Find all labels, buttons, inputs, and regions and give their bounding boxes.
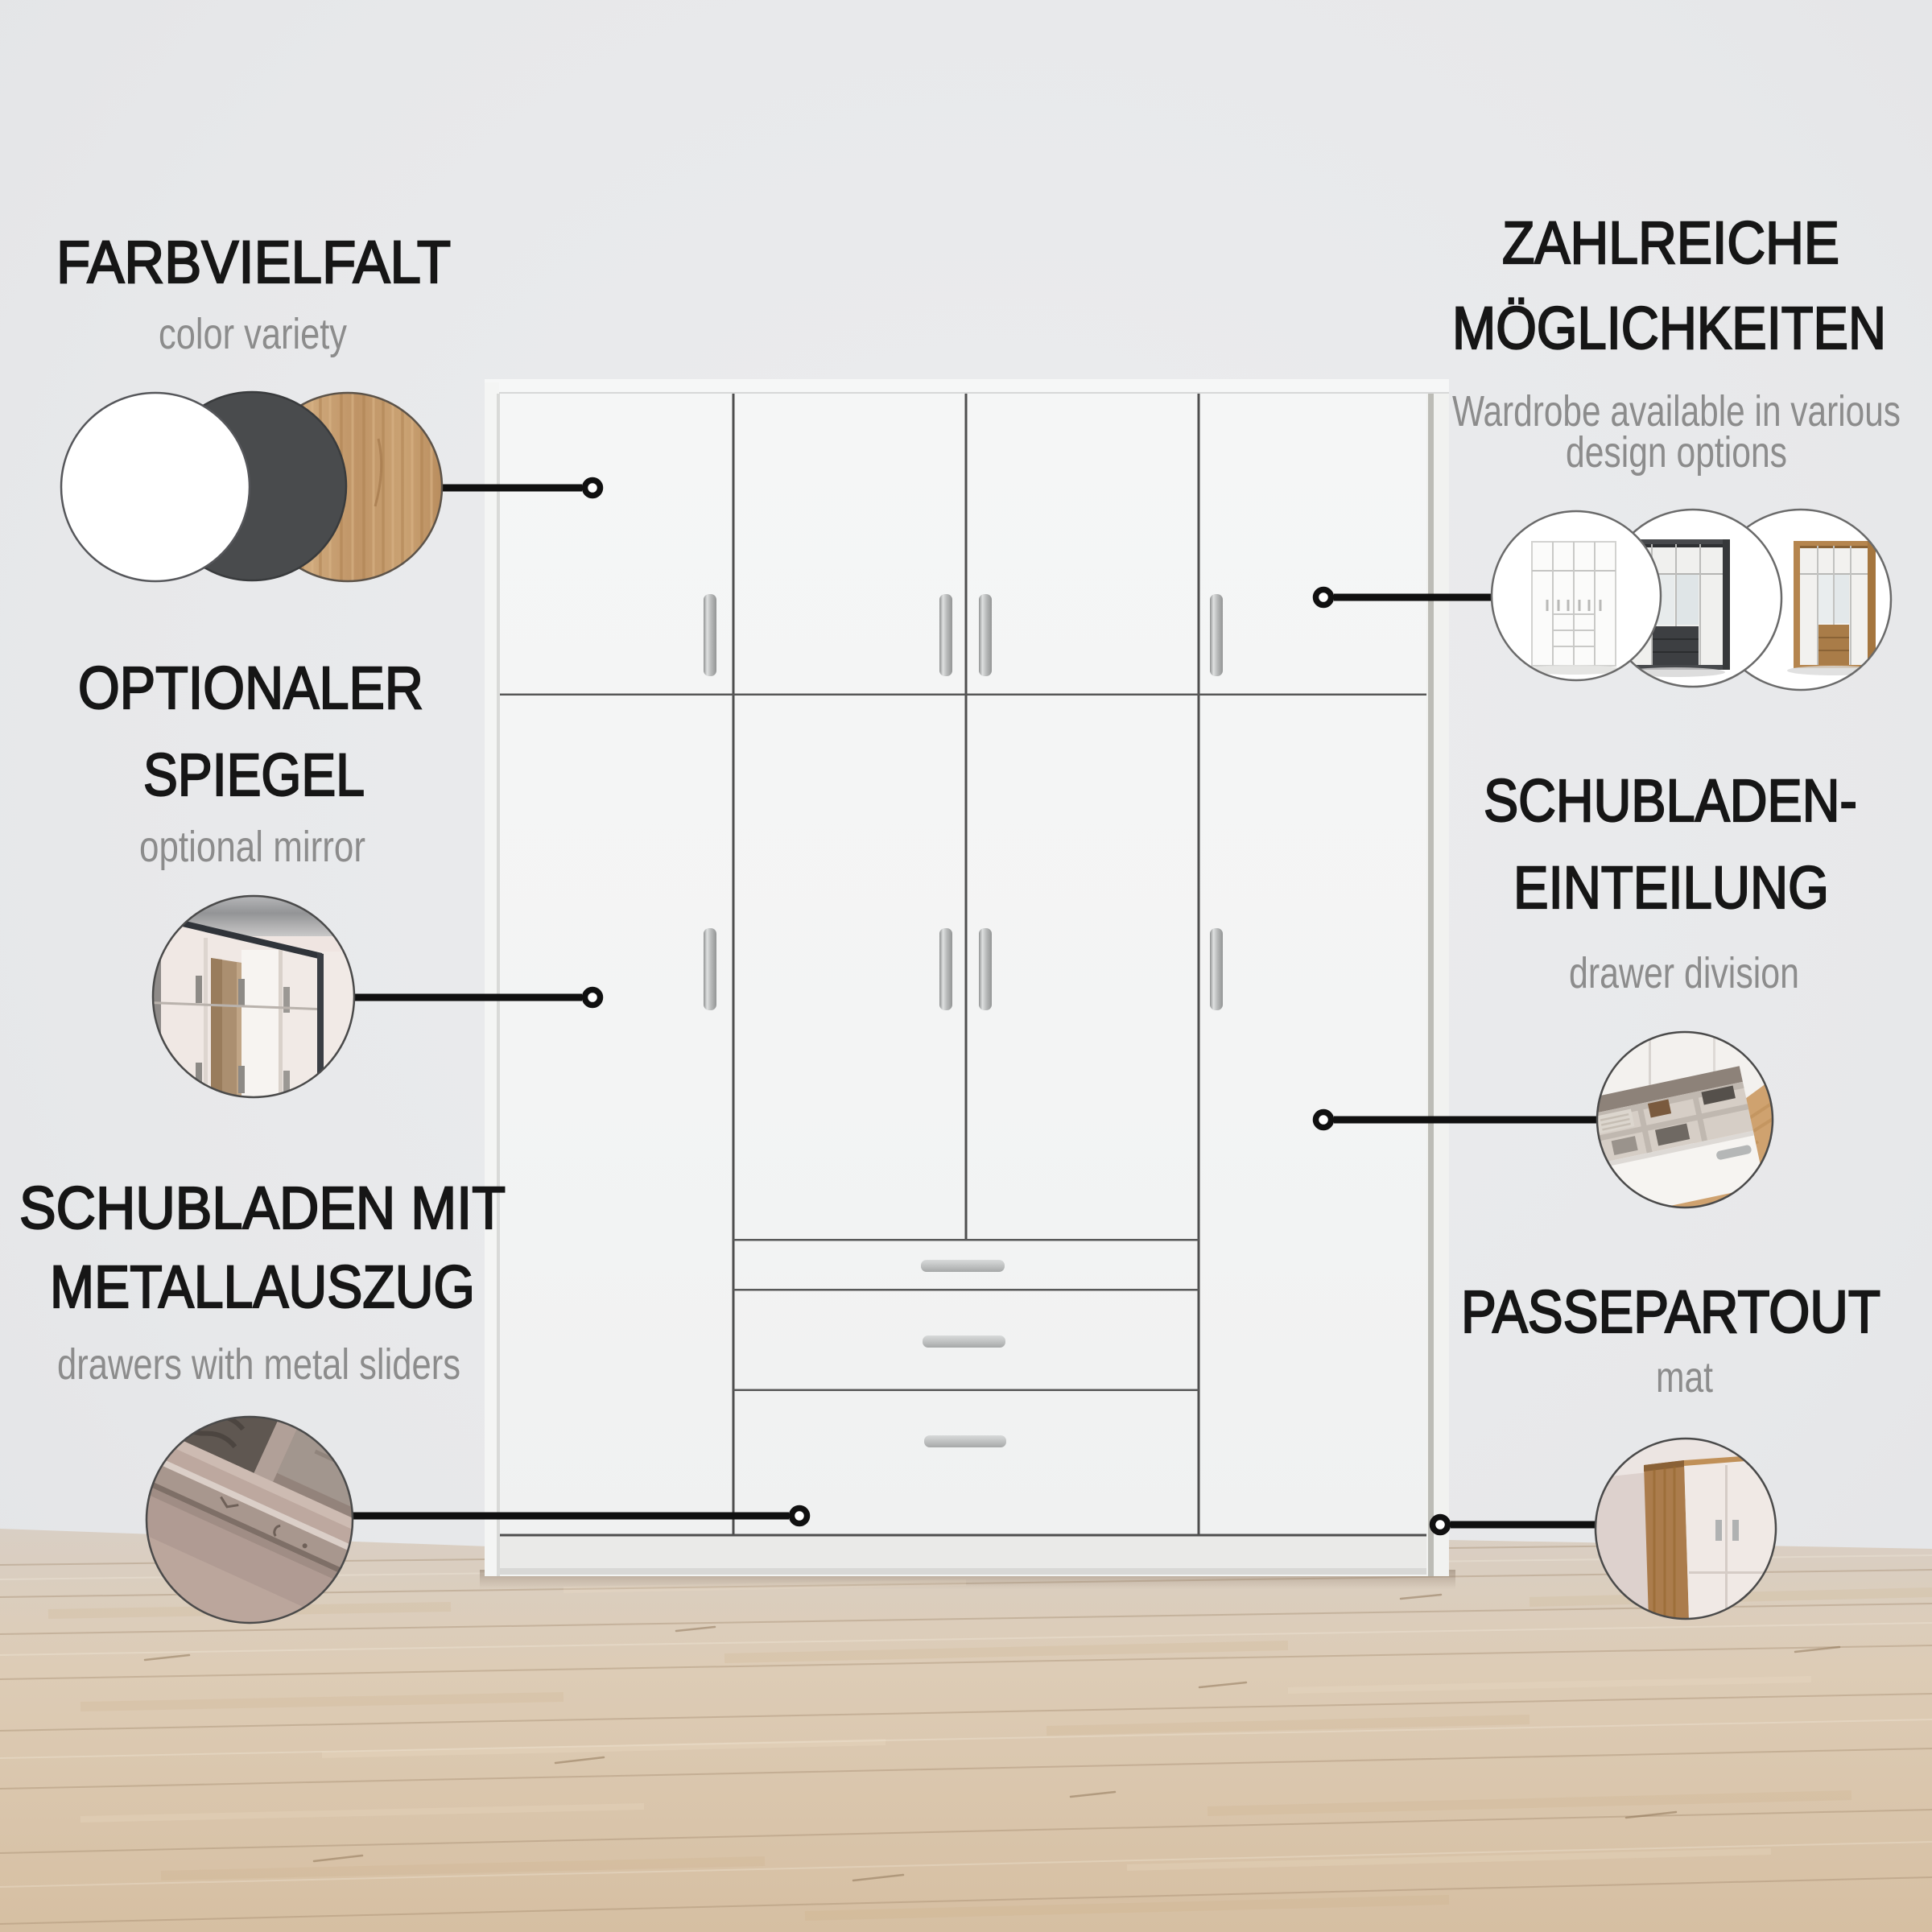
svg-text:FARBVIELFALT: FARBVIELFALT [56, 229, 451, 295]
svg-text:METALLAUSZUG: METALLAUSZUG [50, 1253, 475, 1320]
svg-text:SCHUBLADEN-: SCHUBLADEN- [1484, 767, 1857, 834]
svg-text:SCHUBLADEN MIT: SCHUBLADEN MIT [19, 1174, 506, 1241]
svg-text:OPTIONALER: OPTIONALER [78, 654, 423, 721]
svg-text:drawer division: drawer division [1569, 949, 1799, 997]
svg-text:color variety: color variety [159, 310, 347, 358]
svg-text:optional mirror: optional mirror [139, 823, 365, 871]
svg-text:mat: mat [1656, 1353, 1713, 1402]
svg-text:design options: design options [1566, 428, 1787, 477]
svg-text:PASSEPARTOUT: PASSEPARTOUT [1461, 1278, 1880, 1345]
svg-text:ZAHLREICHE: ZAHLREICHE [1502, 209, 1839, 276]
svg-text:SPIEGEL: SPIEGEL [143, 741, 365, 808]
svg-text:EINTEILUNG: EINTEILUNG [1513, 854, 1829, 921]
svg-text:drawers with metal sliders: drawers with metal sliders [57, 1340, 460, 1389]
svg-text:MÖGLICHKEITEN: MÖGLICHKEITEN [1452, 295, 1886, 361]
